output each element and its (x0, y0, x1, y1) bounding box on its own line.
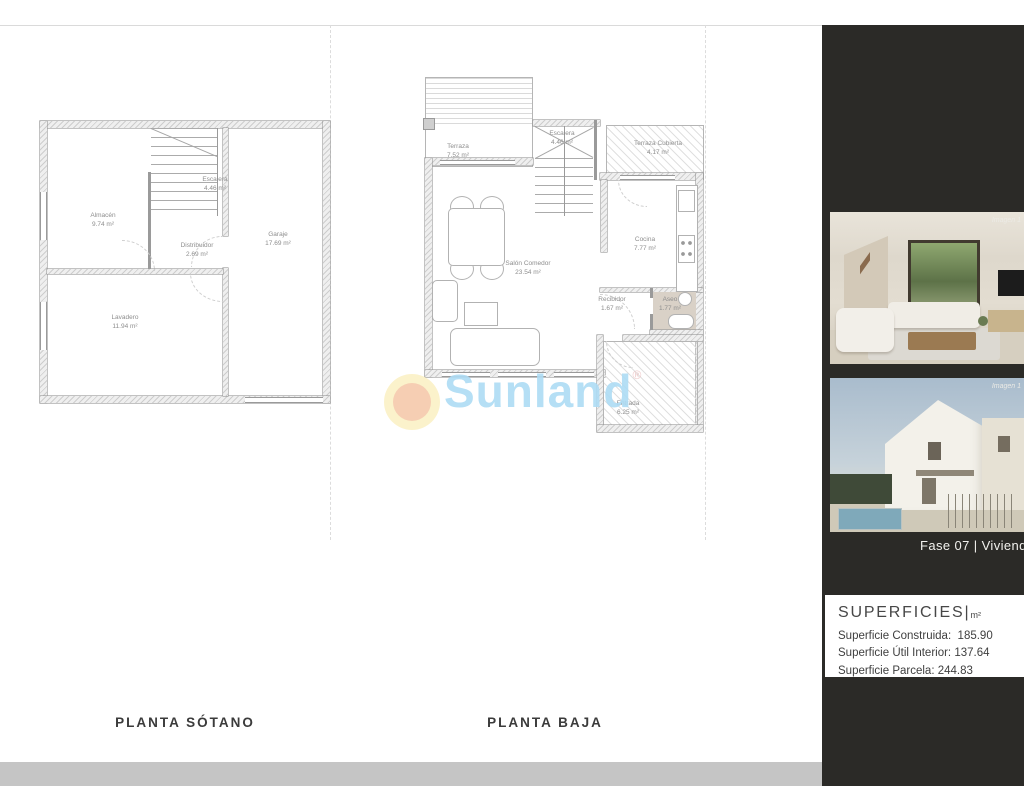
hob (678, 235, 695, 263)
superficies-unit: m² (970, 610, 981, 620)
room-name: Escalera (549, 130, 574, 137)
room-label-escalera: Escalera 4.46 m² (185, 176, 245, 194)
room-label-cocina: Cocina 7.77 m² (615, 236, 675, 254)
superficie-row: Superficie Parcela: 244.83 (838, 663, 993, 680)
plant (978, 316, 988, 326)
window (40, 192, 47, 240)
house-window (928, 442, 941, 460)
brand-wordmark: Sunland® (444, 364, 642, 418)
registered-mark: ® (632, 368, 642, 382)
room-label-almacen: Almacén 9.74 m² (73, 212, 133, 230)
room-name: Lavadero (111, 314, 138, 321)
house-door (922, 478, 936, 504)
plan-title-baja: PLANTA BAJA (420, 715, 670, 730)
row-label: Superficie Construida: (838, 630, 951, 642)
room-label-garaje: Garaje 17.69 m² (248, 231, 308, 249)
superficie-row: Superficie Útil Interior: 137.64 (838, 645, 993, 662)
brand-text: Sunland (444, 365, 632, 417)
window (40, 302, 47, 350)
house-window (998, 436, 1010, 452)
wall (601, 180, 607, 252)
room-area: 1.67 m² (601, 305, 623, 312)
kitchen-sink (678, 190, 695, 212)
room-name: Almacén (90, 212, 115, 219)
room-area: 4.46 m² (551, 139, 573, 146)
plan-title-sotano: PLANTA SÓTANO (40, 715, 330, 730)
sofa-back (888, 302, 980, 328)
room-area: 4.46 m² (204, 185, 226, 192)
row-label: Superficie Útil Interior: (838, 647, 951, 659)
layout-guide-line (330, 25, 331, 540)
image-caption: Imagen 1 (992, 383, 1021, 390)
pool (838, 508, 902, 530)
room-name: Terraza (447, 143, 469, 150)
railing (948, 494, 1014, 528)
room-label-terraza-cubierta: Terraza Cubierta 4.17 m² (624, 140, 692, 158)
room-name: Escalera (202, 176, 227, 183)
garage-door (245, 397, 323, 403)
sidebar: Imagen 1 Imagen 1 Fase 07 | Vivienda SUP… (822, 25, 1024, 786)
photo-exterior: Imagen 1 (830, 378, 1024, 532)
photo-interior: Imagen 1 (830, 212, 1024, 364)
tv (998, 270, 1024, 296)
sunland-watermark: Sunland® (382, 370, 682, 440)
pergola-post (423, 118, 435, 130)
room-name: Salón Comedor (505, 260, 550, 267)
hedge (830, 474, 892, 504)
room-name: Recibidor (598, 296, 625, 303)
wall (40, 121, 47, 403)
sideboard (988, 310, 1024, 332)
room-area: 2.69 m² (186, 251, 208, 258)
row-value: 137.64 (954, 647, 989, 659)
superficies-rows: Superficie Construida: 185.90 Superficie… (838, 628, 993, 680)
door-arc (618, 180, 647, 207)
room-area: 7.77 m² (634, 245, 656, 252)
room-area: 7.52 m² (447, 152, 469, 159)
dining-table (448, 208, 505, 266)
superficies-box: SUPERFICIES|m² Superficie Construida: 18… (825, 595, 1024, 677)
armchair (432, 280, 458, 322)
room-label-distribuidor: Distribuidor 2.69 m² (167, 242, 227, 260)
wall (323, 121, 330, 403)
room-name: Cocina (635, 236, 655, 243)
room-name: Aseo (663, 296, 678, 303)
coffee-table-render (908, 332, 976, 350)
phase-label: Fase 07 | Vivienda (920, 538, 1024, 553)
superficies-title: SUPERFICIES|m² (838, 604, 981, 622)
room-label-escalera: Escalera 4.46 m² (532, 130, 592, 148)
room-name: Garaje (268, 231, 288, 238)
floorplan-sotano: Almacén 9.74 m² Escalera 4.46 m² Distrib… (40, 116, 330, 403)
superficie-row: Superficie Construida: 185.90 (838, 628, 993, 645)
wall (40, 121, 330, 128)
room-label-recibidor: Recibidor 1.67 m² (582, 296, 642, 314)
porch-roof (916, 470, 974, 476)
room-area: 23.54 m² (515, 269, 541, 276)
room-area: 4.17 m² (647, 149, 669, 156)
coffee-table (464, 302, 498, 326)
wall (425, 158, 432, 377)
staircase-edge (217, 128, 218, 216)
sofa-front (836, 308, 894, 352)
wall (533, 120, 600, 126)
door-arc (190, 273, 223, 302)
row-value: 244.83 (938, 665, 973, 677)
room-name: Terraza Cubierta (634, 140, 682, 147)
room-area: 11.94 m² (112, 323, 137, 330)
room-area: 17.69 m² (265, 240, 291, 247)
footer-bar (0, 762, 822, 786)
room-area: 9.74 m² (92, 221, 114, 228)
wall (594, 120, 597, 180)
room-area: 1.77 m² (659, 305, 681, 312)
room-label-lavadero: Lavadero 11.94 m² (95, 314, 155, 332)
room-name: Distribuidor (181, 242, 214, 249)
sofa (450, 328, 540, 366)
row-value: 185.90 (958, 630, 993, 642)
logo-circle-inner (393, 383, 431, 421)
superficies-title-text: SUPERFICIES (838, 604, 965, 621)
room-label-salon: Salón Comedor 23.54 m² (498, 260, 558, 278)
room-label-terraza: Terraza 7.52 m² (428, 143, 488, 161)
toilet (668, 314, 694, 329)
window (440, 160, 515, 165)
image-caption: Imagen 1 (992, 217, 1021, 224)
room-label-aseo: Aseo 1.77 m² (648, 296, 692, 314)
wall (223, 268, 228, 396)
pergola-slats (426, 78, 532, 128)
window-hedge-view (908, 240, 980, 308)
row-label: Superficie Parcela: (838, 665, 935, 677)
